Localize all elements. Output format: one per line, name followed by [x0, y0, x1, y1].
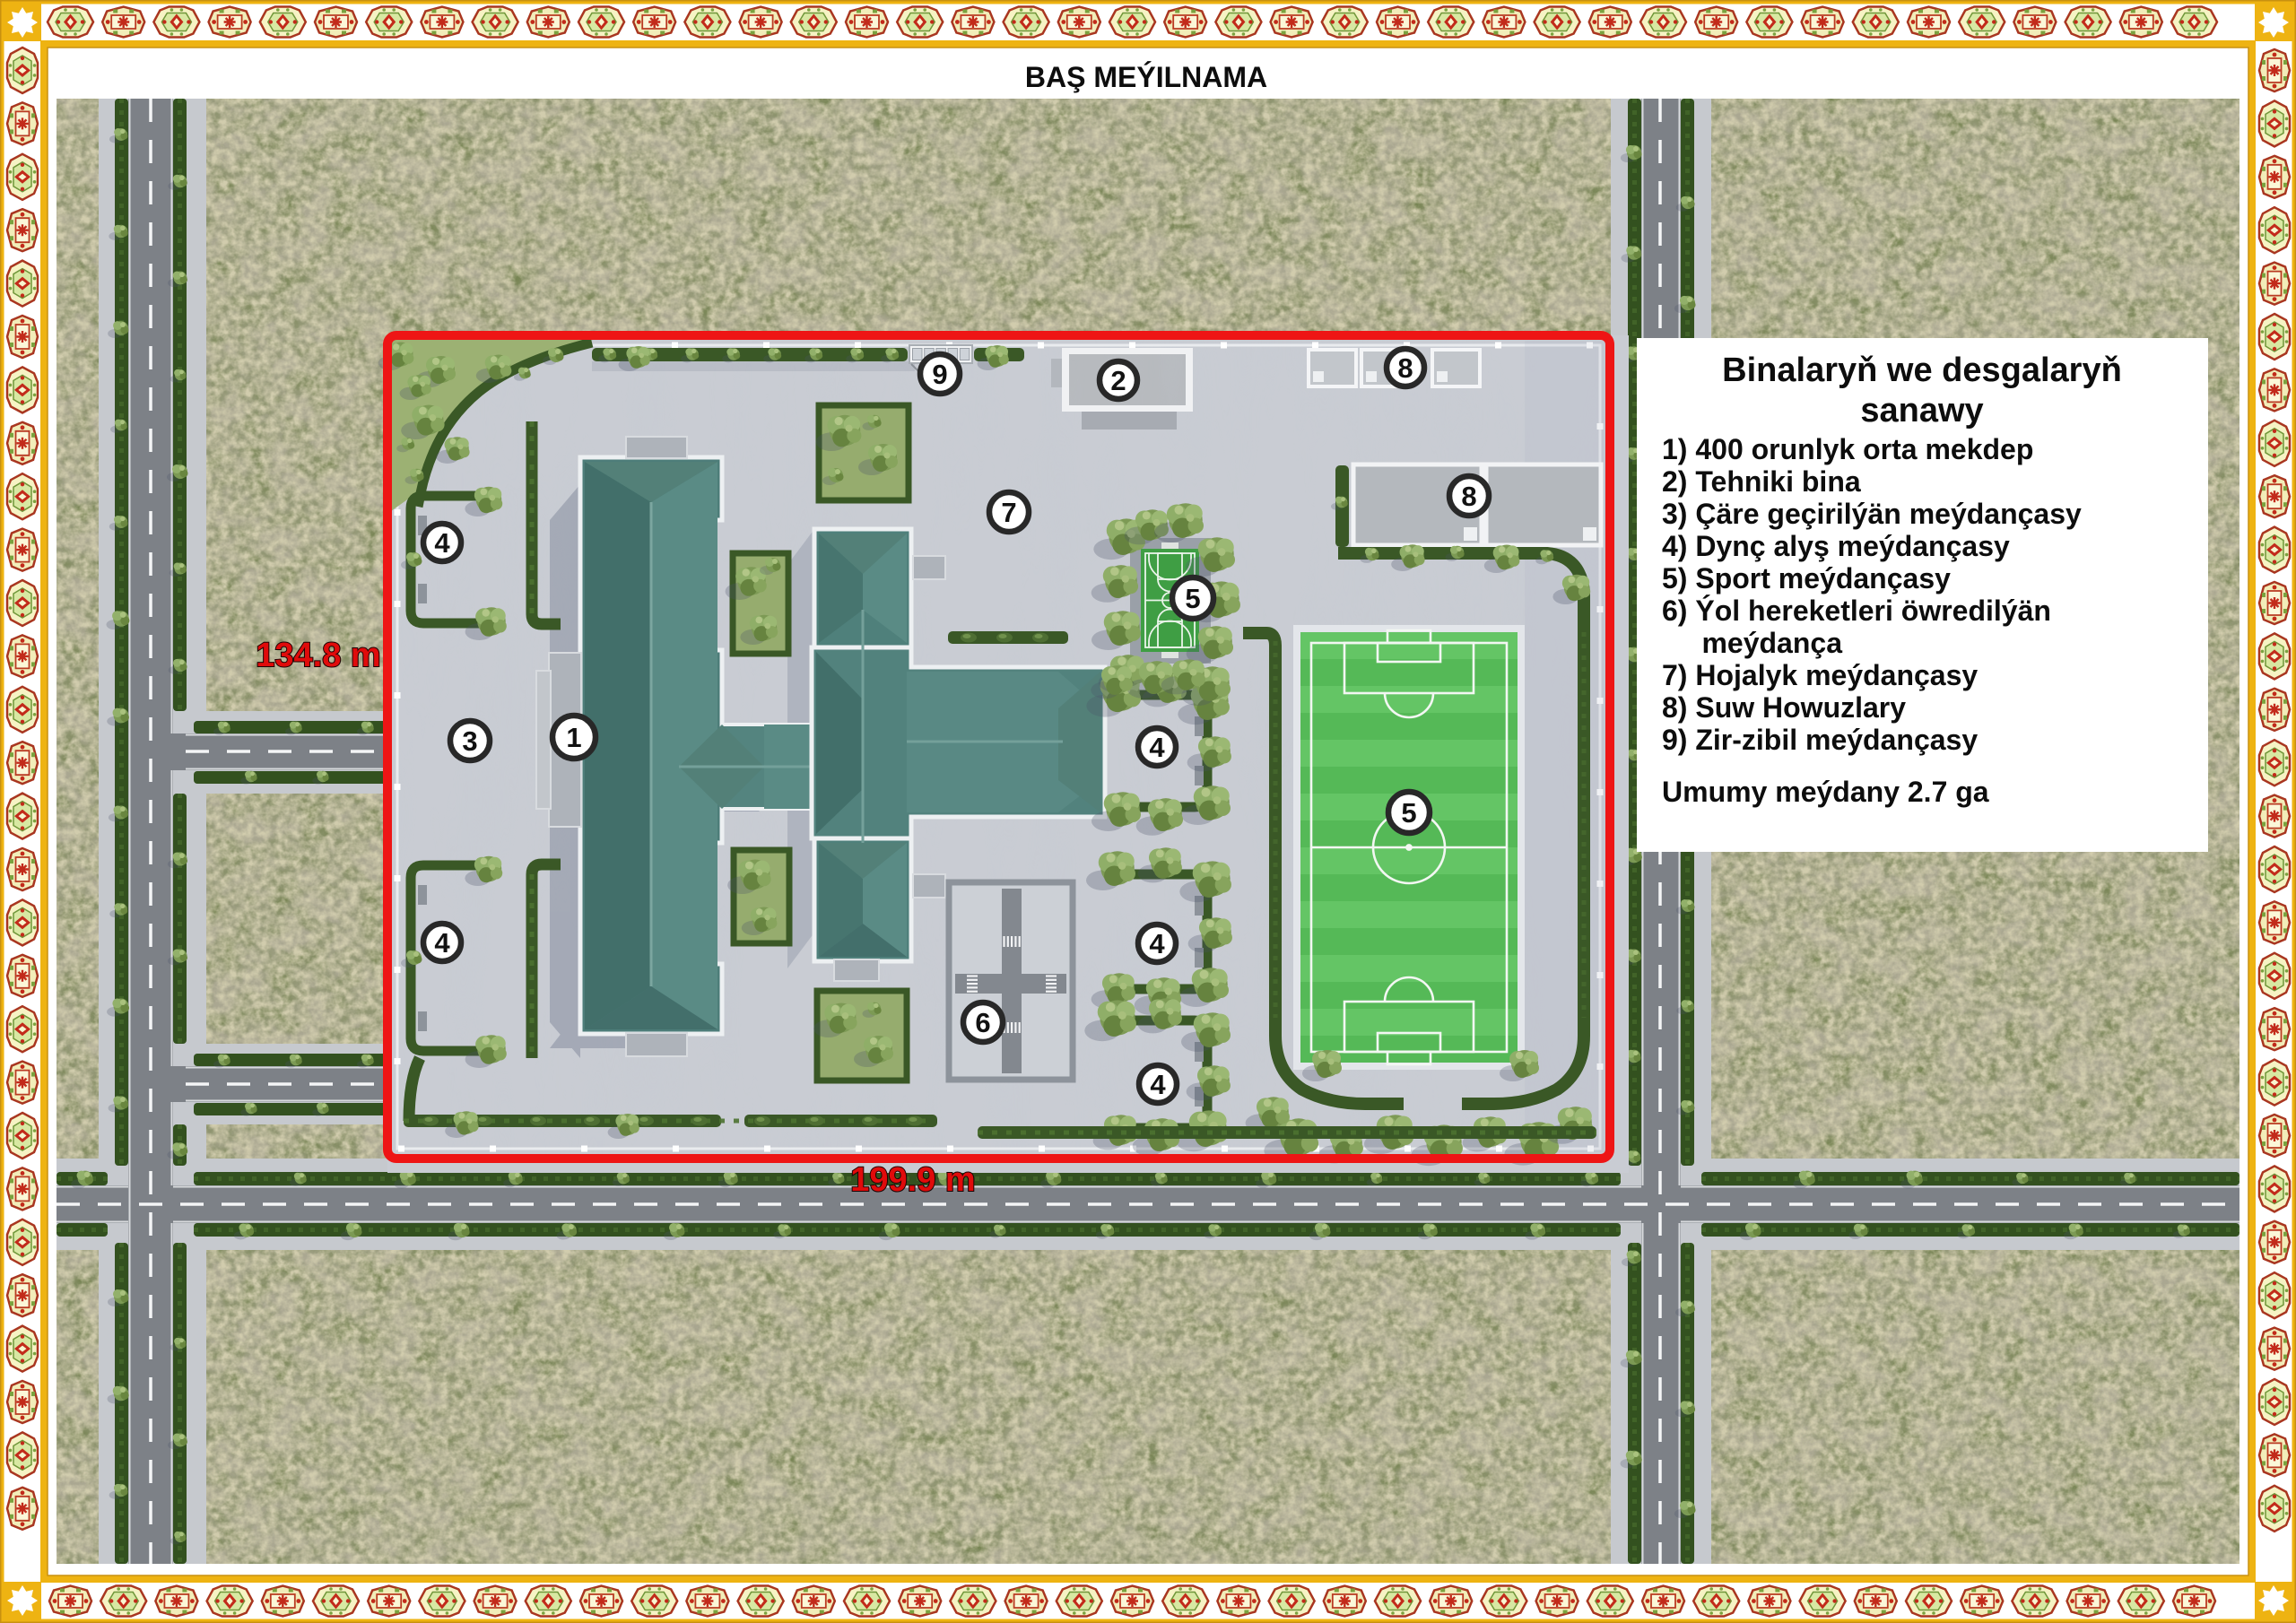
svg-text:8: 8: [1461, 481, 1476, 512]
svg-text:4: 4: [434, 927, 450, 959]
svg-text:BAŞ MEÝILNAMA: BAŞ MEÝILNAMA: [1025, 61, 1267, 93]
svg-text:2: 2: [1110, 365, 1126, 396]
svg-text:8: 8: [1397, 352, 1413, 384]
svg-text:4: 4: [1149, 732, 1165, 763]
svg-text:4: 4: [434, 527, 450, 559]
svg-text:sanawy: sanawy: [1860, 392, 1983, 430]
svg-text:meýdança: meýdança: [1662, 627, 1842, 659]
svg-text:1: 1: [566, 722, 581, 753]
svg-text:3) Çäre geçirilýän meýdançasy: 3) Çäre geçirilýän meýdançasy: [1662, 498, 2082, 530]
svg-text:4: 4: [1149, 928, 1165, 959]
svg-text:6) Ýol hereketleri öwredilýän: 6) Ýol hereketleri öwredilýän: [1662, 595, 2051, 627]
svg-text:Umumy meýdany 2.7 ga: Umumy meýdany 2.7 ga: [1662, 776, 1989, 808]
svg-text:134.8 m: 134.8 m: [256, 637, 380, 674]
svg-text:5: 5: [1401, 797, 1416, 829]
svg-text:5: 5: [1185, 583, 1200, 614]
svg-text:2) Tehniki bina: 2) Tehniki bina: [1662, 465, 1861, 498]
svg-text:7) Hojalyk meýdançasy: 7) Hojalyk meýdançasy: [1662, 659, 1978, 691]
svg-text:5) Sport meýdançasy: 5) Sport meýdançasy: [1662, 562, 1951, 595]
svg-text:3: 3: [462, 725, 477, 757]
svg-text:Binalaryň we desgalaryň: Binalaryň we desgalaryň: [1722, 352, 2122, 389]
svg-text:7: 7: [1001, 497, 1016, 528]
svg-text:9: 9: [932, 359, 947, 390]
svg-text:4: 4: [1150, 1069, 1166, 1100]
svg-text:8) Suw Howuzlary: 8) Suw Howuzlary: [1662, 691, 1906, 724]
svg-text:9) Zir-zibil meýdançasy: 9) Zir-zibil meýdançasy: [1662, 724, 1978, 756]
svg-text:1) 400 orunlyk orta mekdep: 1) 400 orunlyk orta mekdep: [1662, 433, 2033, 465]
svg-text:4) Dynç alyş meýdançasy: 4) Dynç alyş meýdançasy: [1662, 530, 2010, 562]
svg-text:6: 6: [975, 1007, 990, 1038]
svg-text:199.9 m: 199.9 m: [850, 1161, 975, 1199]
